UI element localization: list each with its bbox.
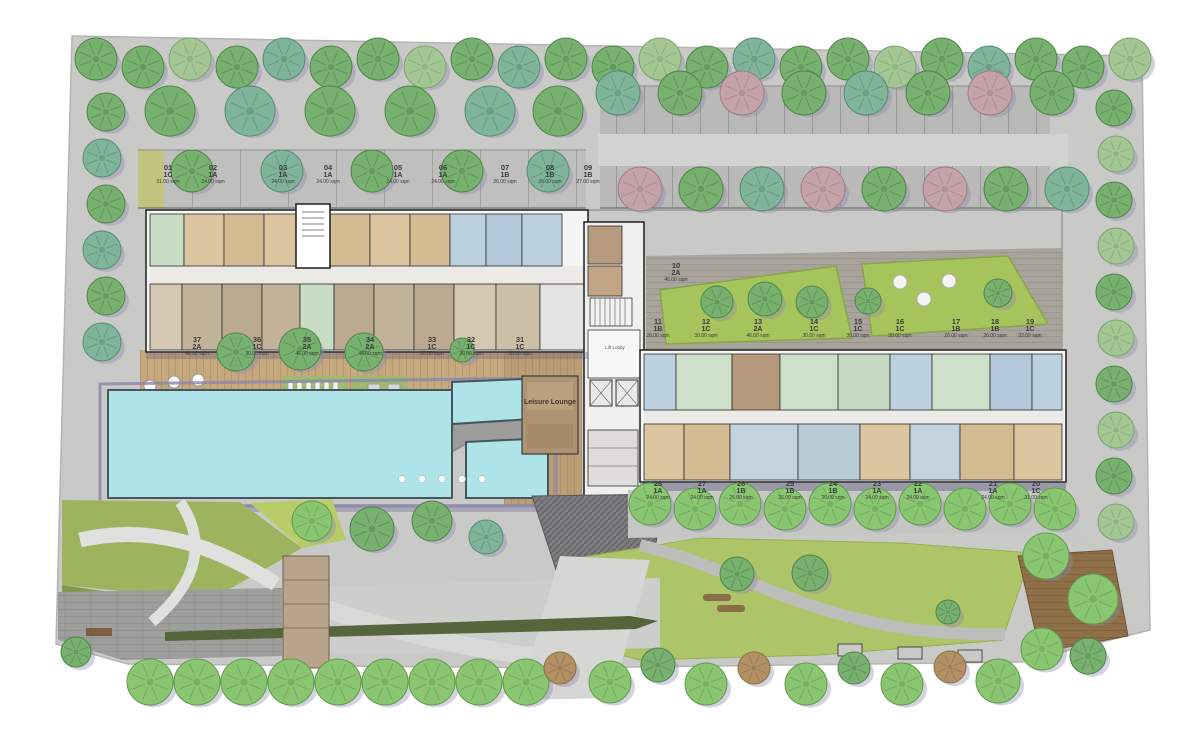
west-wing bbox=[146, 204, 588, 352]
entry-pylon bbox=[283, 556, 329, 668]
tree-icon bbox=[976, 659, 1024, 705]
lift-icon bbox=[590, 380, 612, 406]
tree-icon bbox=[1070, 638, 1110, 677]
tree-icon bbox=[127, 659, 177, 707]
log-bench-icon bbox=[703, 594, 731, 601]
stairs bbox=[590, 298, 632, 326]
lift-icon bbox=[616, 380, 638, 406]
tree-icon bbox=[785, 663, 831, 707]
core-tower bbox=[584, 222, 644, 512]
planter-icon bbox=[893, 275, 907, 289]
leisure-lounge bbox=[522, 376, 578, 454]
planter-icon bbox=[917, 292, 931, 306]
tree-icon bbox=[881, 663, 927, 707]
tree-icon bbox=[685, 663, 731, 707]
site-plan-drawing bbox=[0, 0, 1200, 751]
bench-icon bbox=[898, 647, 922, 659]
swimming-pool bbox=[98, 378, 560, 512]
east-wing bbox=[640, 350, 1066, 482]
lift-lobby bbox=[588, 330, 640, 378]
log-bench-icon bbox=[717, 605, 745, 612]
site-plan-canvas: 011C31.00 sqm021A24.00 sqm031A24.00 sqm0… bbox=[0, 0, 1200, 751]
bench-icon bbox=[86, 628, 112, 636]
corridor bbox=[644, 410, 1064, 424]
tree-icon bbox=[174, 659, 224, 707]
corridor bbox=[150, 266, 584, 284]
tree-icon bbox=[221, 659, 271, 707]
planter-icon bbox=[942, 274, 956, 288]
stair-shaft bbox=[296, 204, 330, 268]
